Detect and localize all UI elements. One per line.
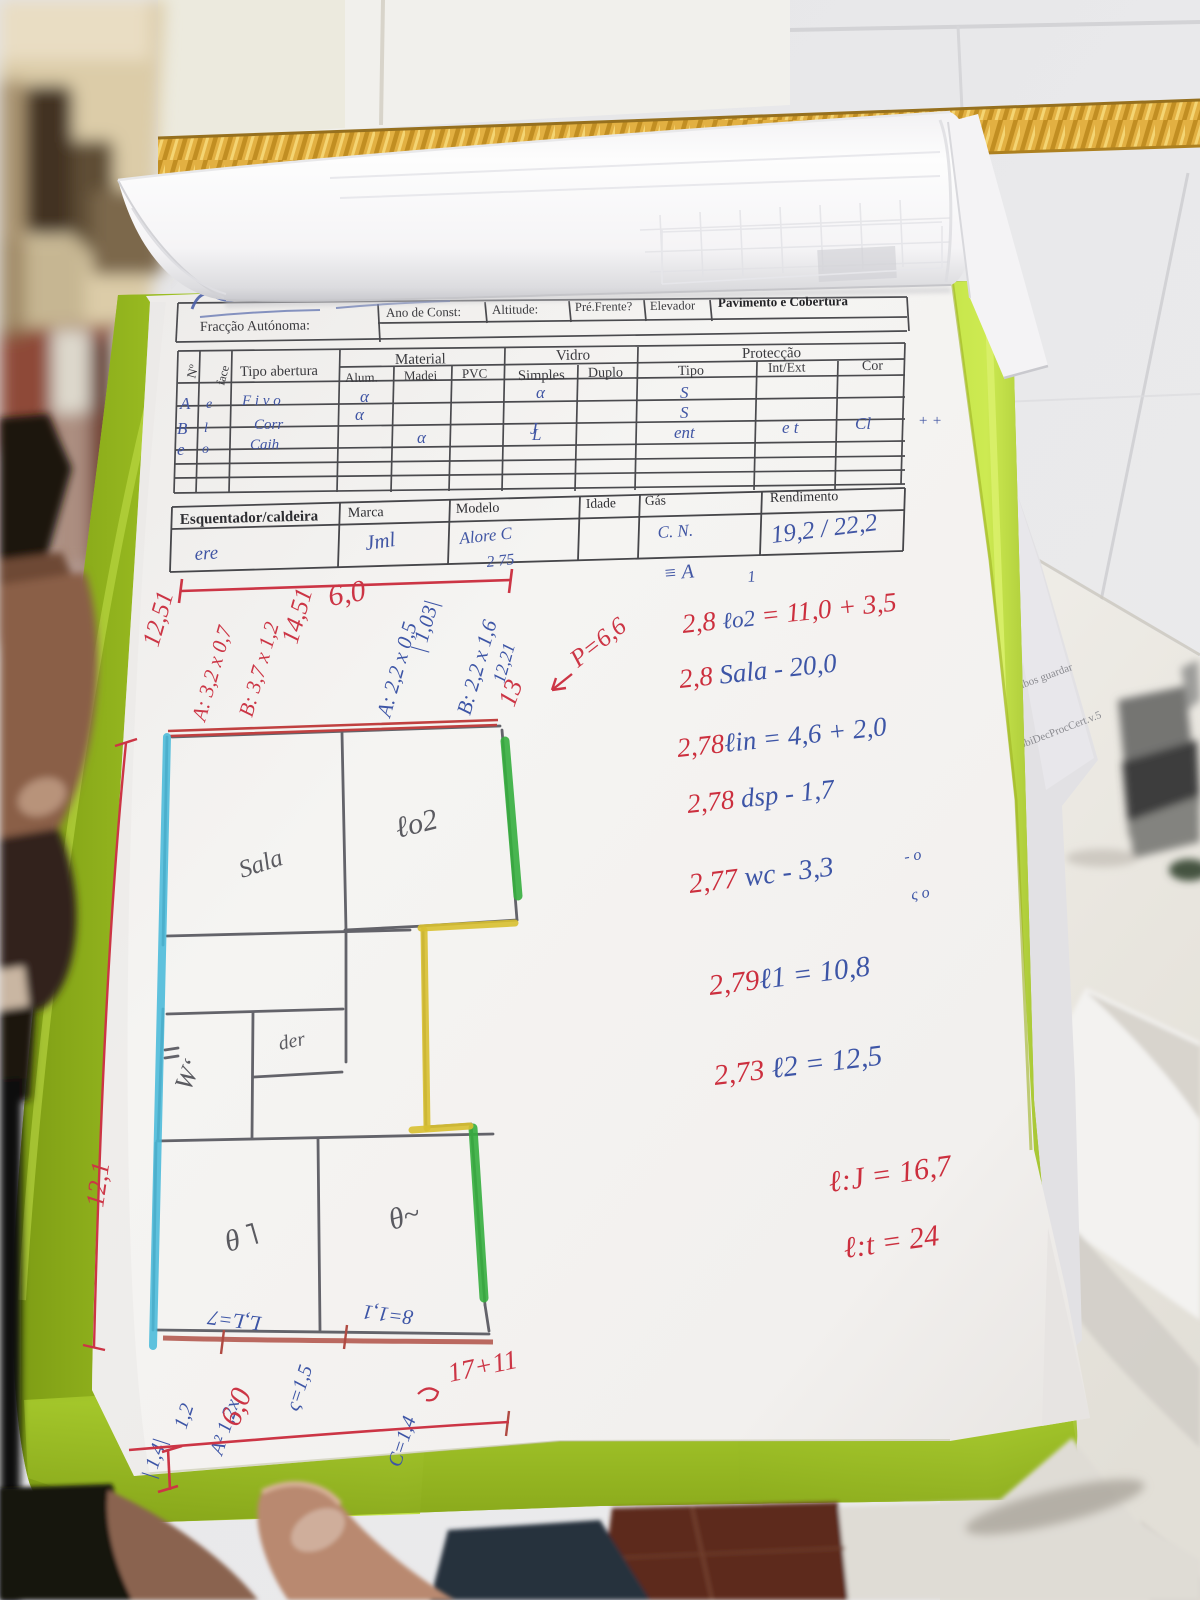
svg-text:α: α <box>536 383 546 402</box>
svg-text:Corr: Corr <box>254 417 283 433</box>
svg-text:A: A <box>179 394 191 413</box>
svg-text:Modelo: Modelo <box>456 501 500 517</box>
svg-text:ς o: ς o <box>910 884 931 904</box>
svg-text:Rendimento: Rendimento <box>770 489 839 506</box>
svg-text:+ +: + + <box>918 413 942 429</box>
svg-text:α: α <box>417 428 427 447</box>
svg-text:Marca: Marca <box>348 505 385 521</box>
svg-text:α: α <box>360 387 370 406</box>
svg-text:Cl: Cl <box>855 414 871 433</box>
svg-text:6,0: 6,0 <box>325 574 368 613</box>
svg-text:Duplo: Duplo <box>588 366 623 381</box>
svg-text:F i v o: F i v o <box>241 393 281 409</box>
svg-text:L: L <box>531 425 541 444</box>
svg-text:e t: e t <box>782 418 800 437</box>
svg-text:Elevador: Elevador <box>650 298 696 313</box>
svg-text:Tipo abertura: Tipo abertura <box>240 363 319 380</box>
svg-text:C. N.: C. N. <box>657 521 694 542</box>
svg-text:Idade: Idade <box>586 495 616 511</box>
svg-text:Gás: Gás <box>645 492 666 508</box>
svg-text:Simples: Simples <box>518 367 565 384</box>
svg-text:o: o <box>202 442 209 457</box>
svg-text:ent: ent <box>674 423 696 442</box>
svg-text:Alum.: Alum. <box>345 370 378 385</box>
svg-text:B: B <box>177 419 188 438</box>
svg-text:Cor: Cor <box>862 359 884 374</box>
svg-text:Vidro: Vidro <box>556 348 590 364</box>
svg-text:≡ A: ≡ A <box>663 560 696 585</box>
svg-text:PVC: PVC <box>462 366 488 381</box>
svg-text:Caih: Caih <box>250 437 279 453</box>
svg-text:Ano de Const:: Ano de Const: <box>386 304 461 320</box>
svg-text:Madei: Madei <box>404 368 438 383</box>
svg-text:Pré.Frente?: Pré.Frente? <box>575 299 633 314</box>
svg-text:Jml: Jml <box>363 527 397 555</box>
svg-text:Fracção Autónoma:: Fracção Autónoma: <box>200 318 310 335</box>
svg-text:Altitude:: Altitude: <box>492 301 538 317</box>
svg-text:Tipo: Tipo <box>678 364 704 379</box>
svg-text:e: e <box>177 440 185 459</box>
svg-text:Int/Ext: Int/Ext <box>768 359 806 375</box>
svg-text:- o: - o <box>903 846 923 866</box>
svg-text:2 75: 2 75 <box>486 551 516 571</box>
svg-text:α: α <box>355 405 365 424</box>
svg-text:e: e <box>206 397 212 412</box>
svg-text:S: S <box>680 383 689 402</box>
svg-text:ere: ere <box>194 542 219 565</box>
svg-text:Material: Material <box>395 351 446 368</box>
svg-text:S: S <box>680 403 689 422</box>
svg-text:l: l <box>204 421 208 436</box>
svg-text:1: 1 <box>747 568 756 586</box>
